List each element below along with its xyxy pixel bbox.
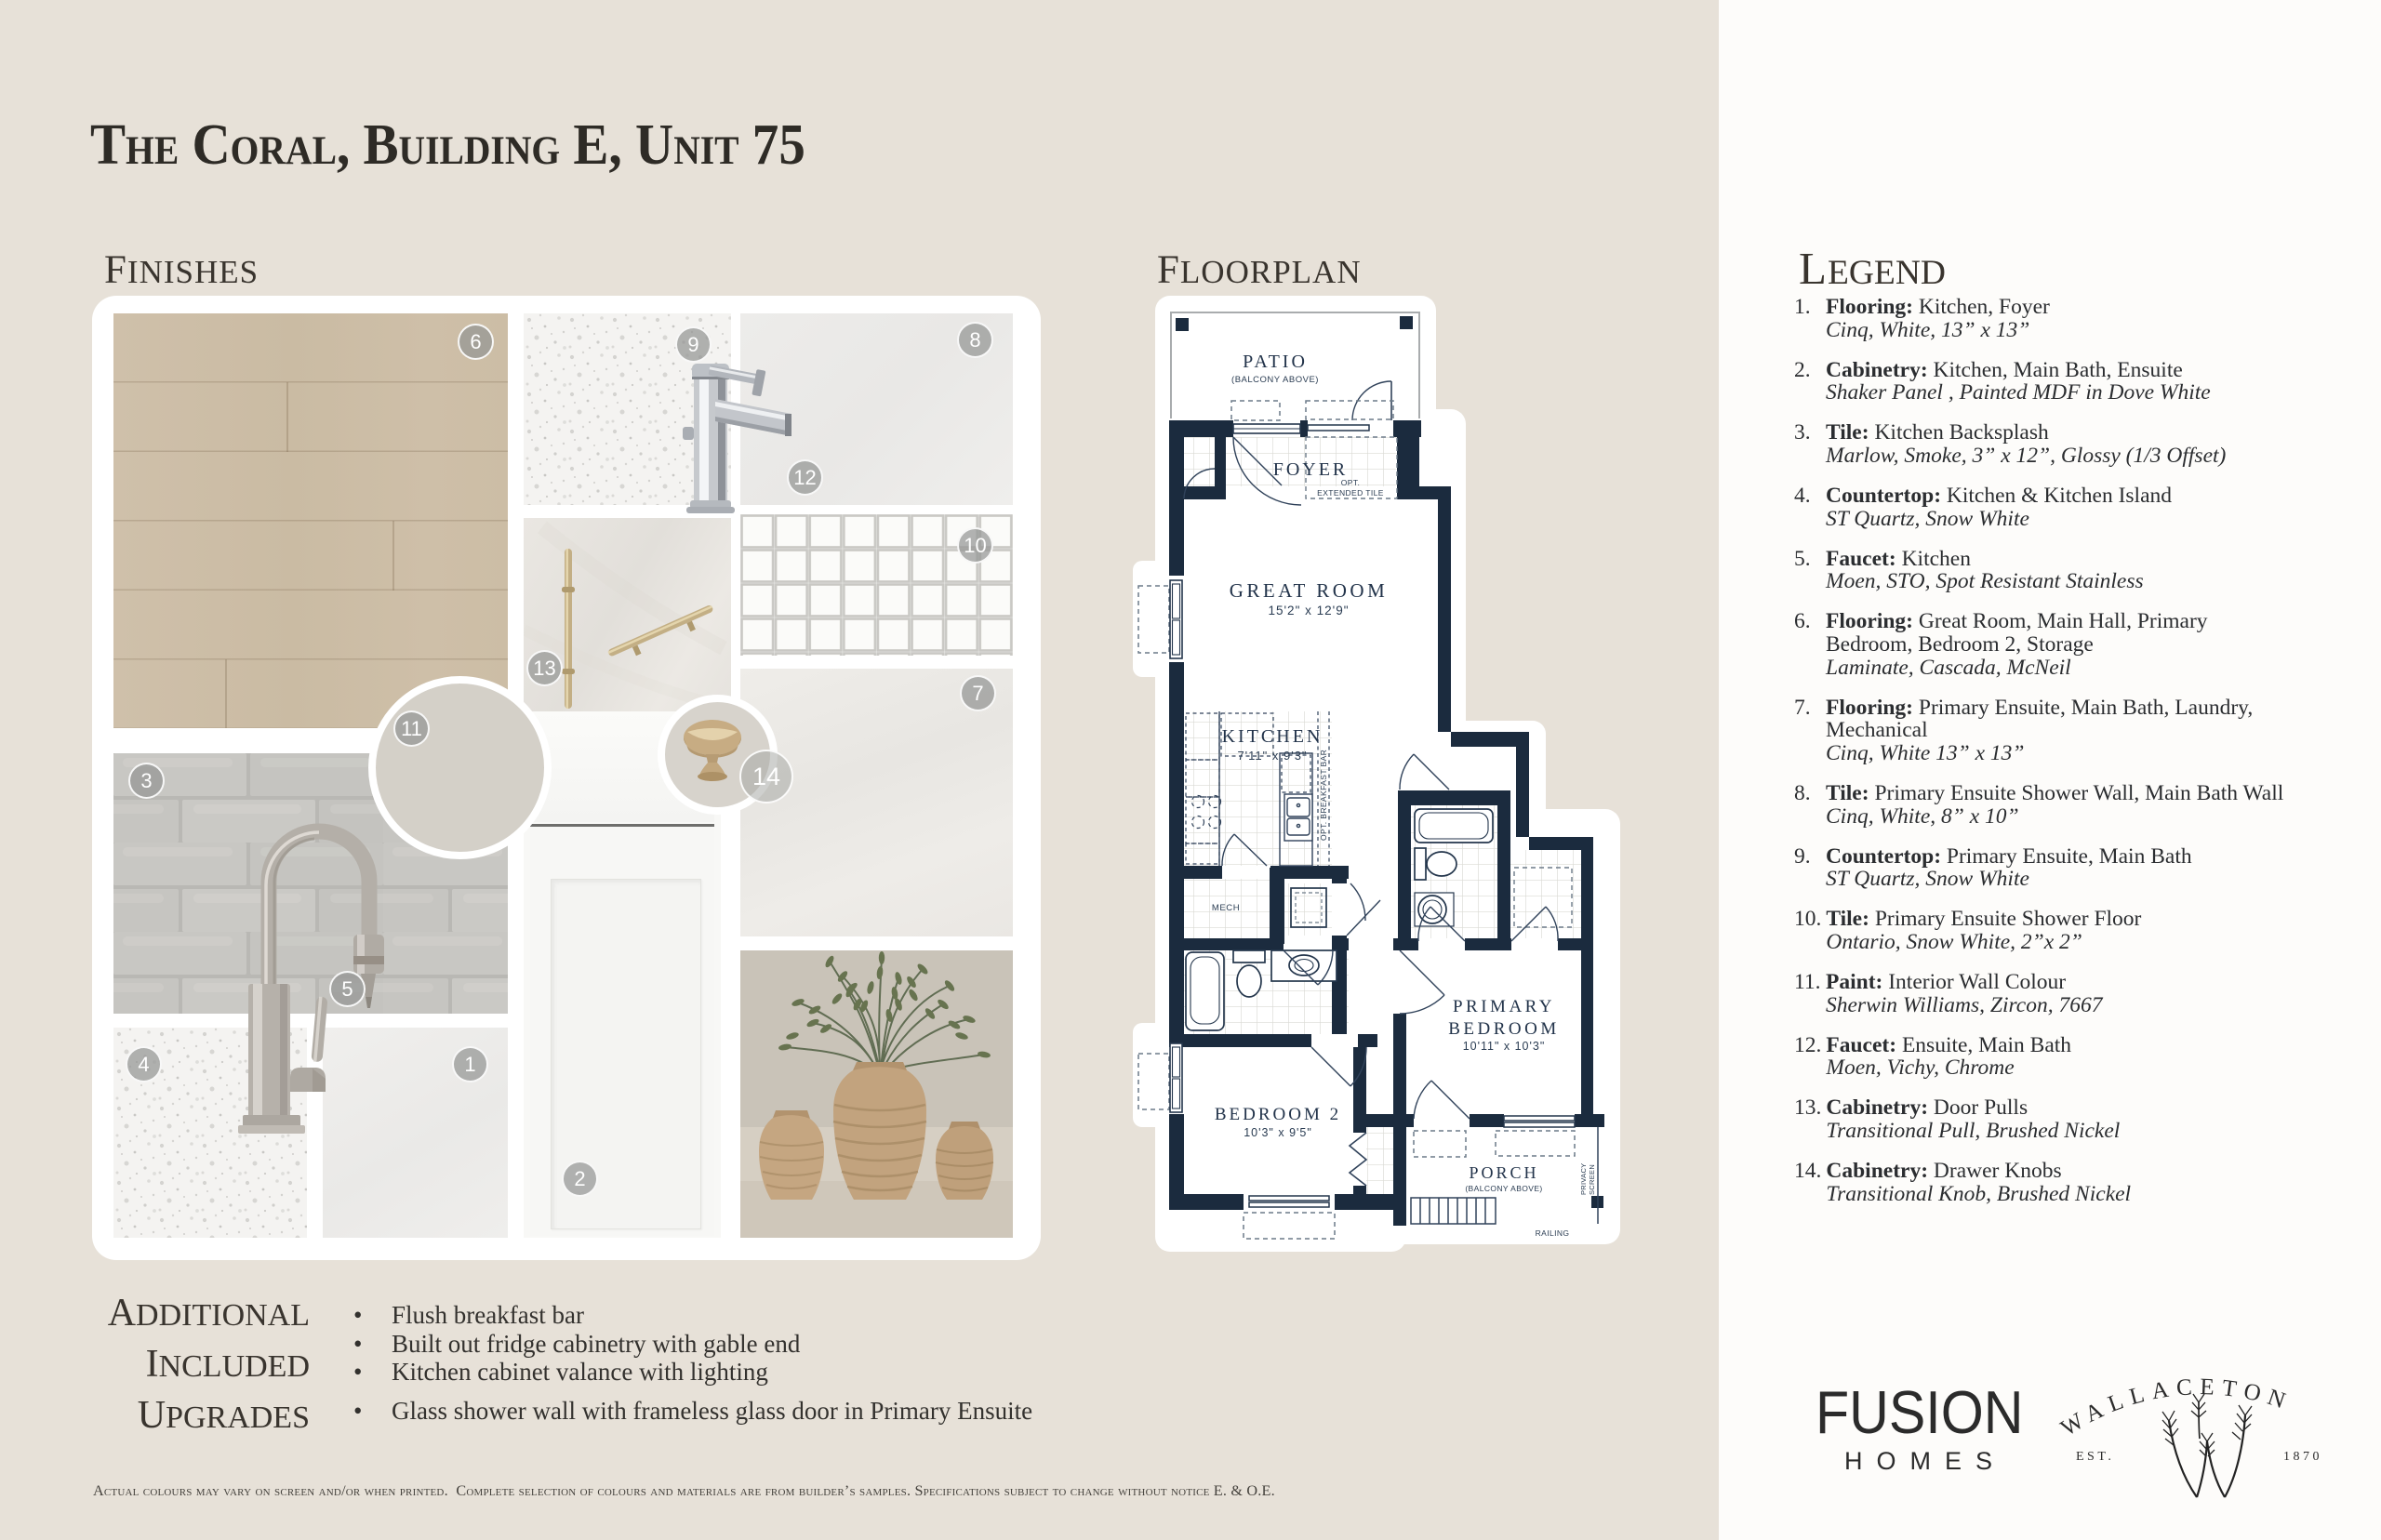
svg-text:BEDROOM 2: BEDROOM 2 (1215, 1105, 1341, 1124)
svg-text:EST.: EST. (2076, 1450, 2114, 1464)
svg-text:GREAT ROOM: GREAT ROOM (1230, 579, 1389, 602)
svg-text:15'2" x 12'9": 15'2" x 12'9" (1268, 604, 1349, 617)
svg-text:1870: 1870 (2283, 1450, 2322, 1464)
svg-text:RAILING: RAILING (1536, 1228, 1570, 1238)
svg-text:10'3" x 9'5": 10'3" x 9'5" (1244, 1126, 1312, 1139)
svg-text:10'11" x 10'3": 10'11" x 10'3" (1463, 1040, 1546, 1053)
svg-text:PORCH: PORCH (1469, 1163, 1538, 1182)
svg-text:7'11" x 9'3": 7'11" x 9'3" (1237, 749, 1307, 763)
svg-text:KITCHEN: KITCHEN (1222, 726, 1324, 747)
svg-text:(BALCONY ABOVE): (BALCONY ABOVE) (1231, 375, 1319, 385)
svg-text:PRIMARY: PRIMARY (1453, 997, 1555, 1016)
svg-text:FOYER: FOYER (1273, 459, 1349, 480)
svg-text:PRIVACY: PRIVACY (1579, 1163, 1588, 1195)
svg-text:BEDROOM: BEDROOM (1448, 1019, 1560, 1039)
svg-text:MECH: MECH (1212, 903, 1240, 913)
svg-text:EXTENDED TILE: EXTENDED TILE (1317, 488, 1384, 498)
svg-text:OPT. BREAKFAST BAR: OPT. BREAKFAST BAR (1319, 750, 1328, 841)
svg-text:(BALCONY ABOVE): (BALCONY ABOVE) (1465, 1184, 1542, 1193)
svg-text:PATIO: PATIO (1243, 352, 1308, 372)
svg-text:OPT.: OPT. (1341, 478, 1361, 487)
svg-text:SCREEN: SCREEN (1588, 1164, 1596, 1195)
